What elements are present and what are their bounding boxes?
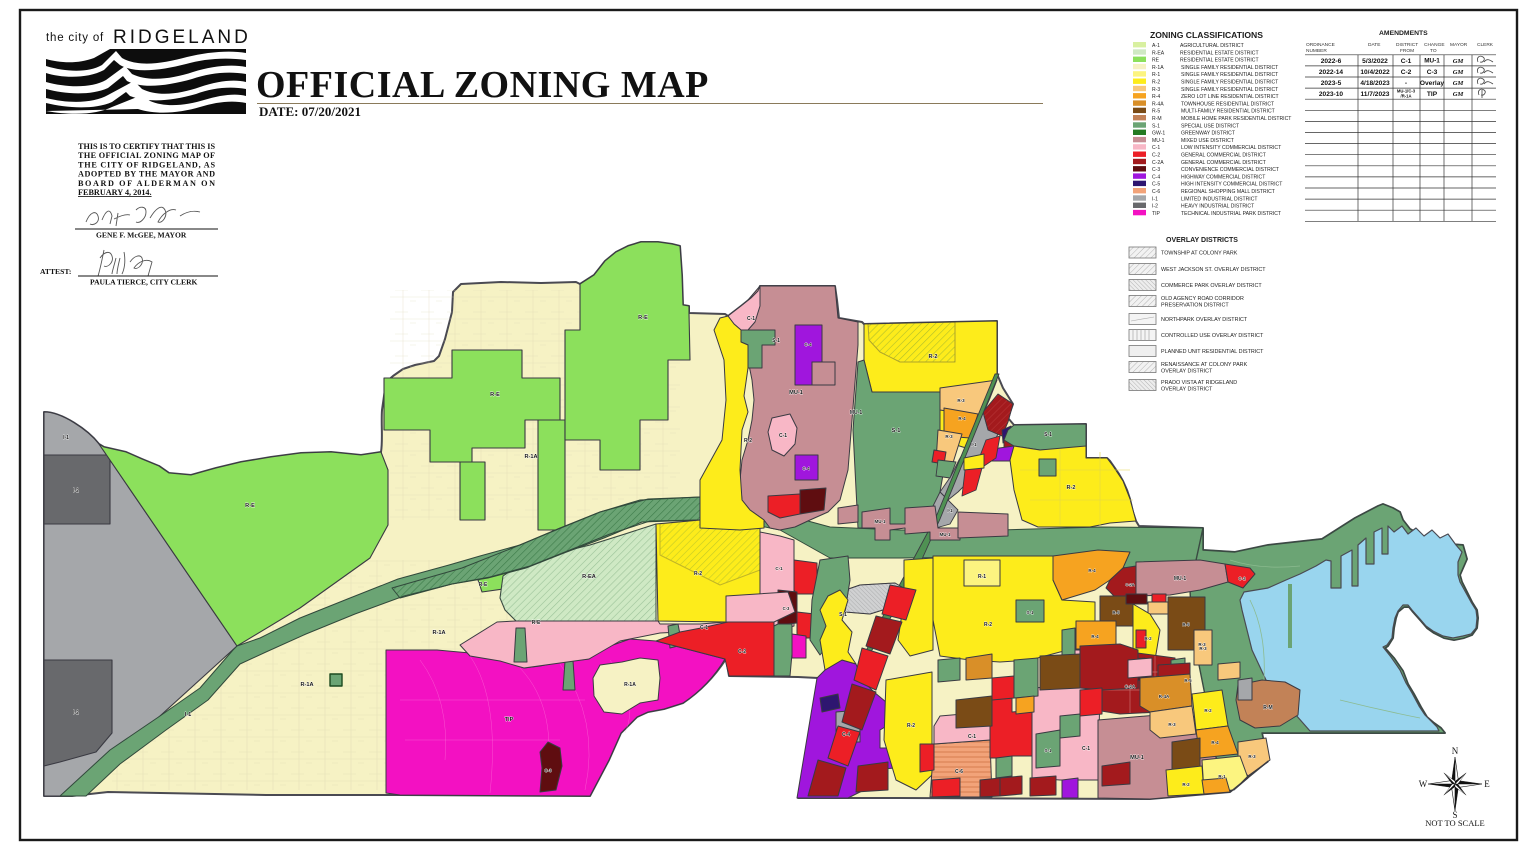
svg-text:S-1: S-1 bbox=[1152, 123, 1160, 129]
svg-text:AMENDMENTS: AMENDMENTS bbox=[1379, 30, 1428, 37]
svg-text:NORTHPARK OVERLAY DISTRICT: NORTHPARK OVERLAY DISTRICT bbox=[1161, 317, 1248, 323]
svg-text:R-2: R-2 bbox=[1066, 485, 1075, 491]
svg-text:S-1: S-1 bbox=[892, 428, 901, 434]
svg-text:R-E: R-E bbox=[490, 392, 500, 398]
svg-text:TIP: TIP bbox=[505, 717, 514, 723]
svg-text:THIS IS TO CERTIFY THAT THIS I: THIS IS TO CERTIFY THAT THIS IS bbox=[78, 142, 215, 151]
svg-text:NUMBER: NUMBER bbox=[1306, 48, 1327, 54]
svg-text:AGRICULTURAL DISTRICT: AGRICULTURAL DISTRICT bbox=[1180, 43, 1244, 49]
svg-text:S-1: S-1 bbox=[772, 338, 780, 344]
svg-text:C-2A: C-2A bbox=[1125, 582, 1134, 587]
svg-text:C-6: C-6 bbox=[955, 769, 963, 775]
svg-text:-: - bbox=[1405, 80, 1407, 87]
svg-text:R-4: R-4 bbox=[1088, 568, 1096, 573]
svg-text:R-4A: R-4A bbox=[1159, 694, 1170, 699]
svg-text:CONTROLLED USE OVERLAY DISTRIC: CONTROLLED USE OVERLAY DISTRICT bbox=[1161, 333, 1264, 339]
svg-text:OVERLAY DISTRICT: OVERLAY DISTRICT bbox=[1161, 369, 1213, 375]
svg-text:GW-1: GW-1 bbox=[1152, 131, 1165, 137]
svg-text:COMMERCE PARK OVERLAY DISTRICT: COMMERCE PARK OVERLAY DISTRICT bbox=[1161, 283, 1262, 289]
svg-text:R-2: R-2 bbox=[1204, 708, 1212, 713]
svg-text:R-E: R-E bbox=[638, 315, 648, 321]
svg-text:DATE: 07/20/2021: DATE: 07/20/2021 bbox=[259, 104, 361, 119]
svg-text:I-2: I-2 bbox=[73, 710, 79, 716]
svg-text:GM: GM bbox=[1453, 69, 1465, 76]
svg-text:LIMITED INDUSTRIAL DISTRICT: LIMITED INDUSTRIAL DISTRICT bbox=[1181, 196, 1258, 202]
svg-text:I-1: I-1 bbox=[971, 442, 977, 447]
svg-text:R-1A: R-1A bbox=[432, 630, 445, 636]
svg-text:R-5: R-5 bbox=[1184, 678, 1192, 683]
svg-text:OVERLAY DISTRICT: OVERLAY DISTRICT bbox=[1161, 387, 1213, 393]
svg-text:2022-14: 2022-14 bbox=[1319, 69, 1344, 76]
svg-text:ORDINANCE: ORDINANCE bbox=[1306, 42, 1335, 48]
svg-text:I-1: I-1 bbox=[185, 712, 192, 718]
svg-text:OLD AGENCY ROAD CORRIDOR: OLD AGENCY ROAD CORRIDOR bbox=[1161, 296, 1244, 302]
svg-text:C-4: C-4 bbox=[842, 732, 850, 738]
svg-text:R-2: R-2 bbox=[744, 438, 752, 444]
svg-text:R-2: R-2 bbox=[907, 723, 915, 729]
svg-text:R-5: R-5 bbox=[1152, 109, 1160, 115]
svg-text:RIDGELAND: RIDGELAND bbox=[113, 27, 251, 48]
svg-text:C-4: C-4 bbox=[1152, 174, 1160, 180]
svg-text:CONVENIENCE COMMERCIAL DISTRIC: CONVENIENCE COMMERCIAL DISTRICT bbox=[1181, 167, 1279, 173]
svg-text:C-3: C-3 bbox=[783, 606, 790, 611]
svg-text:PRADO VISTA AT RIDGELAND: PRADO VISTA AT RIDGELAND bbox=[1161, 380, 1237, 386]
svg-text:R-4: R-4 bbox=[1152, 94, 1160, 100]
svg-text:NOT TO SCALE: NOT TO SCALE bbox=[1425, 818, 1485, 828]
svg-text:/R-1A: /R-1A bbox=[1401, 94, 1412, 99]
svg-text:R-E: R-E bbox=[245, 503, 255, 509]
svg-text:R-2: R-2 bbox=[984, 622, 992, 628]
svg-text:C-6: C-6 bbox=[1152, 189, 1160, 195]
svg-text:R-E: R-E bbox=[479, 582, 488, 588]
svg-text:MU-1: MU-1 bbox=[940, 532, 951, 537]
svg-text:CLERK: CLERK bbox=[1477, 42, 1494, 48]
svg-text:RENAISSANCE AT COLONY PARK: RENAISSANCE AT COLONY PARK bbox=[1161, 362, 1248, 368]
svg-text:TOWNSHIP AT COLONY PARK: TOWNSHIP AT COLONY PARK bbox=[1161, 251, 1238, 257]
svg-text:MU-1: MU-1 bbox=[1174, 576, 1186, 582]
svg-text:MIXED USE DISTRICT: MIXED USE DISTRICT bbox=[1181, 138, 1234, 144]
svg-text:C-3: C-3 bbox=[1152, 167, 1160, 173]
svg-text:11/7/2023: 11/7/2023 bbox=[1361, 91, 1390, 98]
svg-text:RE: RE bbox=[1152, 58, 1160, 64]
svg-text:ZONING CLASSIFICATIONS: ZONING CLASSIFICATIONS bbox=[1150, 30, 1263, 40]
svg-text:C-1: C-1 bbox=[968, 734, 976, 740]
svg-text:N: N bbox=[1452, 746, 1459, 756]
svg-text:MU-1: MU-1 bbox=[1130, 755, 1144, 761]
svg-text:Overlay: Overlay bbox=[1420, 80, 1445, 87]
svg-text:THE CITY OF RIDGELAND, AS: THE CITY OF RIDGELAND, AS bbox=[78, 160, 215, 169]
svg-text:R-4: R-4 bbox=[1091, 634, 1099, 639]
svg-text:C-2A: C-2A bbox=[1125, 684, 1136, 689]
svg-text:GREENWAY DISTRICT: GREENWAY DISTRICT bbox=[1181, 131, 1235, 137]
svg-text:I-1: I-1 bbox=[63, 435, 69, 441]
svg-text:R-EA: R-EA bbox=[1152, 50, 1165, 56]
svg-text:TECHNICAL INDUSTRIAL PARK DIST: TECHNICAL INDUSTRIAL PARK DISTRICT bbox=[1181, 211, 1281, 217]
svg-text:PAULA TIERCE, CITY CLERK: PAULA TIERCE, CITY CLERK bbox=[90, 278, 198, 287]
svg-text:R-2: R-2 bbox=[1182, 782, 1190, 787]
svg-text:C-3: C-3 bbox=[544, 768, 552, 773]
svg-text:R-5: R-5 bbox=[1182, 622, 1190, 627]
svg-text:R-1A: R-1A bbox=[300, 682, 313, 688]
svg-text:MU-1: MU-1 bbox=[875, 519, 886, 524]
svg-text:MAYOR: MAYOR bbox=[1450, 42, 1468, 48]
svg-text:the city of: the city of bbox=[46, 32, 104, 44]
svg-text:I-1: I-1 bbox=[947, 508, 953, 513]
svg-text:MU-1: MU-1 bbox=[1424, 58, 1440, 65]
svg-text:R-2: R-2 bbox=[1144, 636, 1152, 641]
svg-text:2022-6: 2022-6 bbox=[1321, 58, 1342, 65]
svg-text:ATTEST:: ATTEST: bbox=[40, 267, 71, 276]
svg-text:R-2: R-2 bbox=[928, 354, 937, 360]
svg-text:GM: GM bbox=[1453, 80, 1465, 87]
svg-text:I-2: I-2 bbox=[73, 488, 79, 494]
svg-text:WEST JACKSON ST. OVERLAY DISTR: WEST JACKSON ST. OVERLAY DISTRICT bbox=[1161, 267, 1266, 273]
svg-text:MU-1: MU-1 bbox=[789, 390, 803, 396]
svg-text:R-M: R-M bbox=[1152, 116, 1162, 122]
svg-text:R-E: R-E bbox=[532, 620, 541, 626]
svg-text:R-3: R-3 bbox=[1198, 642, 1206, 647]
svg-text:C-2A: C-2A bbox=[1152, 160, 1164, 166]
svg-text:C-3: C-3 bbox=[1427, 69, 1438, 76]
svg-text:C-1: C-1 bbox=[1152, 145, 1160, 151]
svg-text:R-1A: R-1A bbox=[524, 454, 537, 460]
svg-text:FROM: FROM bbox=[1400, 48, 1414, 54]
svg-text:OFFICIAL ZONING MAP: OFFICIAL ZONING MAP bbox=[256, 64, 709, 106]
svg-text:DISTRICT: DISTRICT bbox=[1396, 42, 1418, 48]
svg-text:C-2: C-2 bbox=[1401, 69, 1412, 76]
svg-text:SINGLE FAMILY RESIDENTIAL DIST: SINGLE FAMILY RESIDENTIAL DISTRICT bbox=[1181, 87, 1278, 93]
svg-text:GENERAL COMMERCIAL DISTRICT: GENERAL COMMERCIAL DISTRICT bbox=[1181, 160, 1266, 166]
svg-text:SINGLE FAMILY RESIDENTIAL DIST: SINGLE FAMILY RESIDENTIAL DISTRICT bbox=[1181, 72, 1278, 78]
svg-text:GM: GM bbox=[1453, 91, 1465, 98]
svg-text:GENE F. McGEE, MAYOR: GENE F. McGEE, MAYOR bbox=[96, 231, 187, 240]
svg-text:MULTI-FAMILY RESIDENTIAL DISTR: MULTI-FAMILY RESIDENTIAL DISTRICT bbox=[1181, 109, 1275, 115]
svg-text:SPECIAL USE DISTRICT: SPECIAL USE DISTRICT bbox=[1181, 123, 1239, 129]
svg-text:R-3: R-3 bbox=[945, 434, 953, 439]
svg-text:FEBRUARY 4, 2014.: FEBRUARY 4, 2014. bbox=[78, 188, 152, 197]
svg-text:R-3: R-3 bbox=[957, 398, 965, 403]
svg-text:C-1: C-1 bbox=[1401, 58, 1412, 65]
svg-text:PLANNED UNIT RESIDENTIAL DISTR: PLANNED UNIT RESIDENTIAL DISTRICT bbox=[1161, 349, 1264, 355]
svg-text:SINGLE FAMILY RESIDENTIAL DIST: SINGLE FAMILY RESIDENTIAL DISTRICT bbox=[1181, 65, 1278, 71]
svg-text:R-1: R-1 bbox=[1218, 774, 1226, 779]
svg-text:HIGH INTENSITY COMMERCIAL DIST: HIGH INTENSITY COMMERCIAL DISTRICT bbox=[1181, 182, 1282, 188]
svg-text:TIP: TIP bbox=[1427, 91, 1438, 98]
svg-text:R-4A: R-4A bbox=[1152, 101, 1164, 107]
svg-text:I-2: I-2 bbox=[1152, 204, 1158, 210]
svg-text:R-1A: R-1A bbox=[1152, 65, 1164, 71]
svg-text:S-1: S-1 bbox=[1026, 610, 1034, 615]
svg-text:C-1: C-1 bbox=[747, 316, 755, 322]
svg-text:W: W bbox=[1419, 779, 1428, 789]
svg-text:ADOPTED BY THE MAYOR AND: ADOPTED BY THE MAYOR AND bbox=[78, 170, 215, 179]
svg-text:GM: GM bbox=[1453, 58, 1465, 65]
svg-text:RESIDENTIAL ESTATE DISTRICT: RESIDENTIAL ESTATE DISTRICT bbox=[1180, 50, 1259, 56]
svg-text:OVERLAY DISTRICTS: OVERLAY DISTRICTS bbox=[1166, 237, 1238, 244]
svg-text:S-1: S-1 bbox=[839, 612, 847, 618]
svg-text:GENERAL COMMERCIAL DISTRICT: GENERAL COMMERCIAL DISTRICT bbox=[1181, 153, 1266, 159]
svg-text:MU-1: MU-1 bbox=[850, 410, 862, 416]
svg-text:C-2: C-2 bbox=[1238, 576, 1246, 581]
svg-text:TOWNHOUSE RESIDENTIAL DISTRICT: TOWNHOUSE RESIDENTIAL DISTRICT bbox=[1181, 101, 1274, 107]
svg-text:C-1: C-1 bbox=[775, 566, 783, 571]
svg-text:DATE: DATE bbox=[1368, 42, 1380, 48]
svg-text:SINGLE FAMILY RESIDENTIAL DIST: SINGLE FAMILY RESIDENTIAL DISTRICT bbox=[1181, 80, 1278, 86]
svg-text:C-1: C-1 bbox=[700, 625, 708, 631]
svg-text:RESIDENTIAL ESTATE DISTRICT: RESIDENTIAL ESTATE DISTRICT bbox=[1180, 58, 1259, 64]
svg-text:R-3: R-3 bbox=[1168, 722, 1176, 727]
svg-text:A-1: A-1 bbox=[1152, 43, 1160, 49]
svg-text:R-1: R-1 bbox=[1152, 72, 1160, 78]
svg-text:C-4: C-4 bbox=[802, 466, 810, 471]
svg-text:LOW INTENSITY COMMERCIAL DISTR: LOW INTENSITY COMMERCIAL DISTRICT bbox=[1181, 145, 1281, 151]
svg-text:C-2: C-2 bbox=[1152, 153, 1160, 159]
svg-text:2023-10: 2023-10 bbox=[1319, 91, 1344, 98]
svg-text:C-5: C-5 bbox=[1152, 182, 1160, 188]
svg-text:C-2: C-2 bbox=[738, 649, 746, 655]
svg-text:5/3/2022: 5/3/2022 bbox=[1362, 58, 1388, 65]
svg-text:REGIONAL SHOPPING MALL DISTRIC: REGIONAL SHOPPING MALL DISTRICT bbox=[1181, 189, 1275, 195]
svg-text:10/4/2022: 10/4/2022 bbox=[1360, 69, 1390, 76]
svg-text:TIP: TIP bbox=[1152, 211, 1161, 217]
svg-text:BOARD OF ALDERMAN ON: BOARD OF ALDERMAN ON bbox=[78, 179, 215, 188]
svg-text:MOBILE HOME PARK RESIDENTIAL D: MOBILE HOME PARK RESIDENTIAL DISTRICT bbox=[1181, 116, 1291, 122]
svg-text:R-4: R-4 bbox=[1211, 740, 1219, 745]
svg-text:2023-5: 2023-5 bbox=[1321, 80, 1342, 87]
svg-text:R-5: R-5 bbox=[1112, 610, 1120, 615]
svg-text:C-1: C-1 bbox=[1082, 746, 1090, 752]
svg-text:TO: TO bbox=[1430, 48, 1437, 54]
svg-text:R-2: R-2 bbox=[694, 571, 702, 577]
svg-text:S-1: S-1 bbox=[1044, 432, 1052, 438]
svg-text:R-EA: R-EA bbox=[582, 574, 596, 580]
svg-text:R-4: R-4 bbox=[958, 416, 966, 421]
svg-text:C-4: C-4 bbox=[804, 342, 812, 347]
svg-text:ZERO LOT LINE RESIDENTIAL DIST: ZERO LOT LINE RESIDENTIAL DISTRICT bbox=[1181, 94, 1279, 100]
svg-text:THE OFFICIAL ZONING MAP OF: THE OFFICIAL ZONING MAP OF bbox=[78, 151, 215, 160]
svg-text:R-1A: R-1A bbox=[624, 682, 636, 688]
svg-text:R-3: R-3 bbox=[1248, 754, 1256, 759]
svg-text:MU-1: MU-1 bbox=[1152, 138, 1165, 144]
svg-text:R-M: R-M bbox=[1263, 705, 1272, 711]
svg-text:C-1: C-1 bbox=[779, 433, 787, 439]
svg-text:I-1: I-1 bbox=[1152, 196, 1158, 202]
svg-text:S-1: S-1 bbox=[1044, 748, 1052, 753]
svg-text:R-1: R-1 bbox=[978, 574, 986, 580]
svg-text:R-3: R-3 bbox=[1152, 87, 1160, 93]
svg-text:CHANGE: CHANGE bbox=[1424, 42, 1445, 48]
svg-text:R-2: R-2 bbox=[1152, 80, 1160, 86]
svg-text:HIGHWAY COMMERCIAL DISTRICT: HIGHWAY COMMERCIAL DISTRICT bbox=[1181, 174, 1265, 180]
svg-text:HEAVY INDUSTRIAL DISTRICT: HEAVY INDUSTRIAL DISTRICT bbox=[1181, 204, 1254, 210]
svg-text:4/18/2023: 4/18/2023 bbox=[1360, 80, 1390, 87]
svg-text:E: E bbox=[1484, 779, 1490, 789]
svg-text:PRESERVATION DISTRICT: PRESERVATION DISTRICT bbox=[1161, 303, 1229, 309]
